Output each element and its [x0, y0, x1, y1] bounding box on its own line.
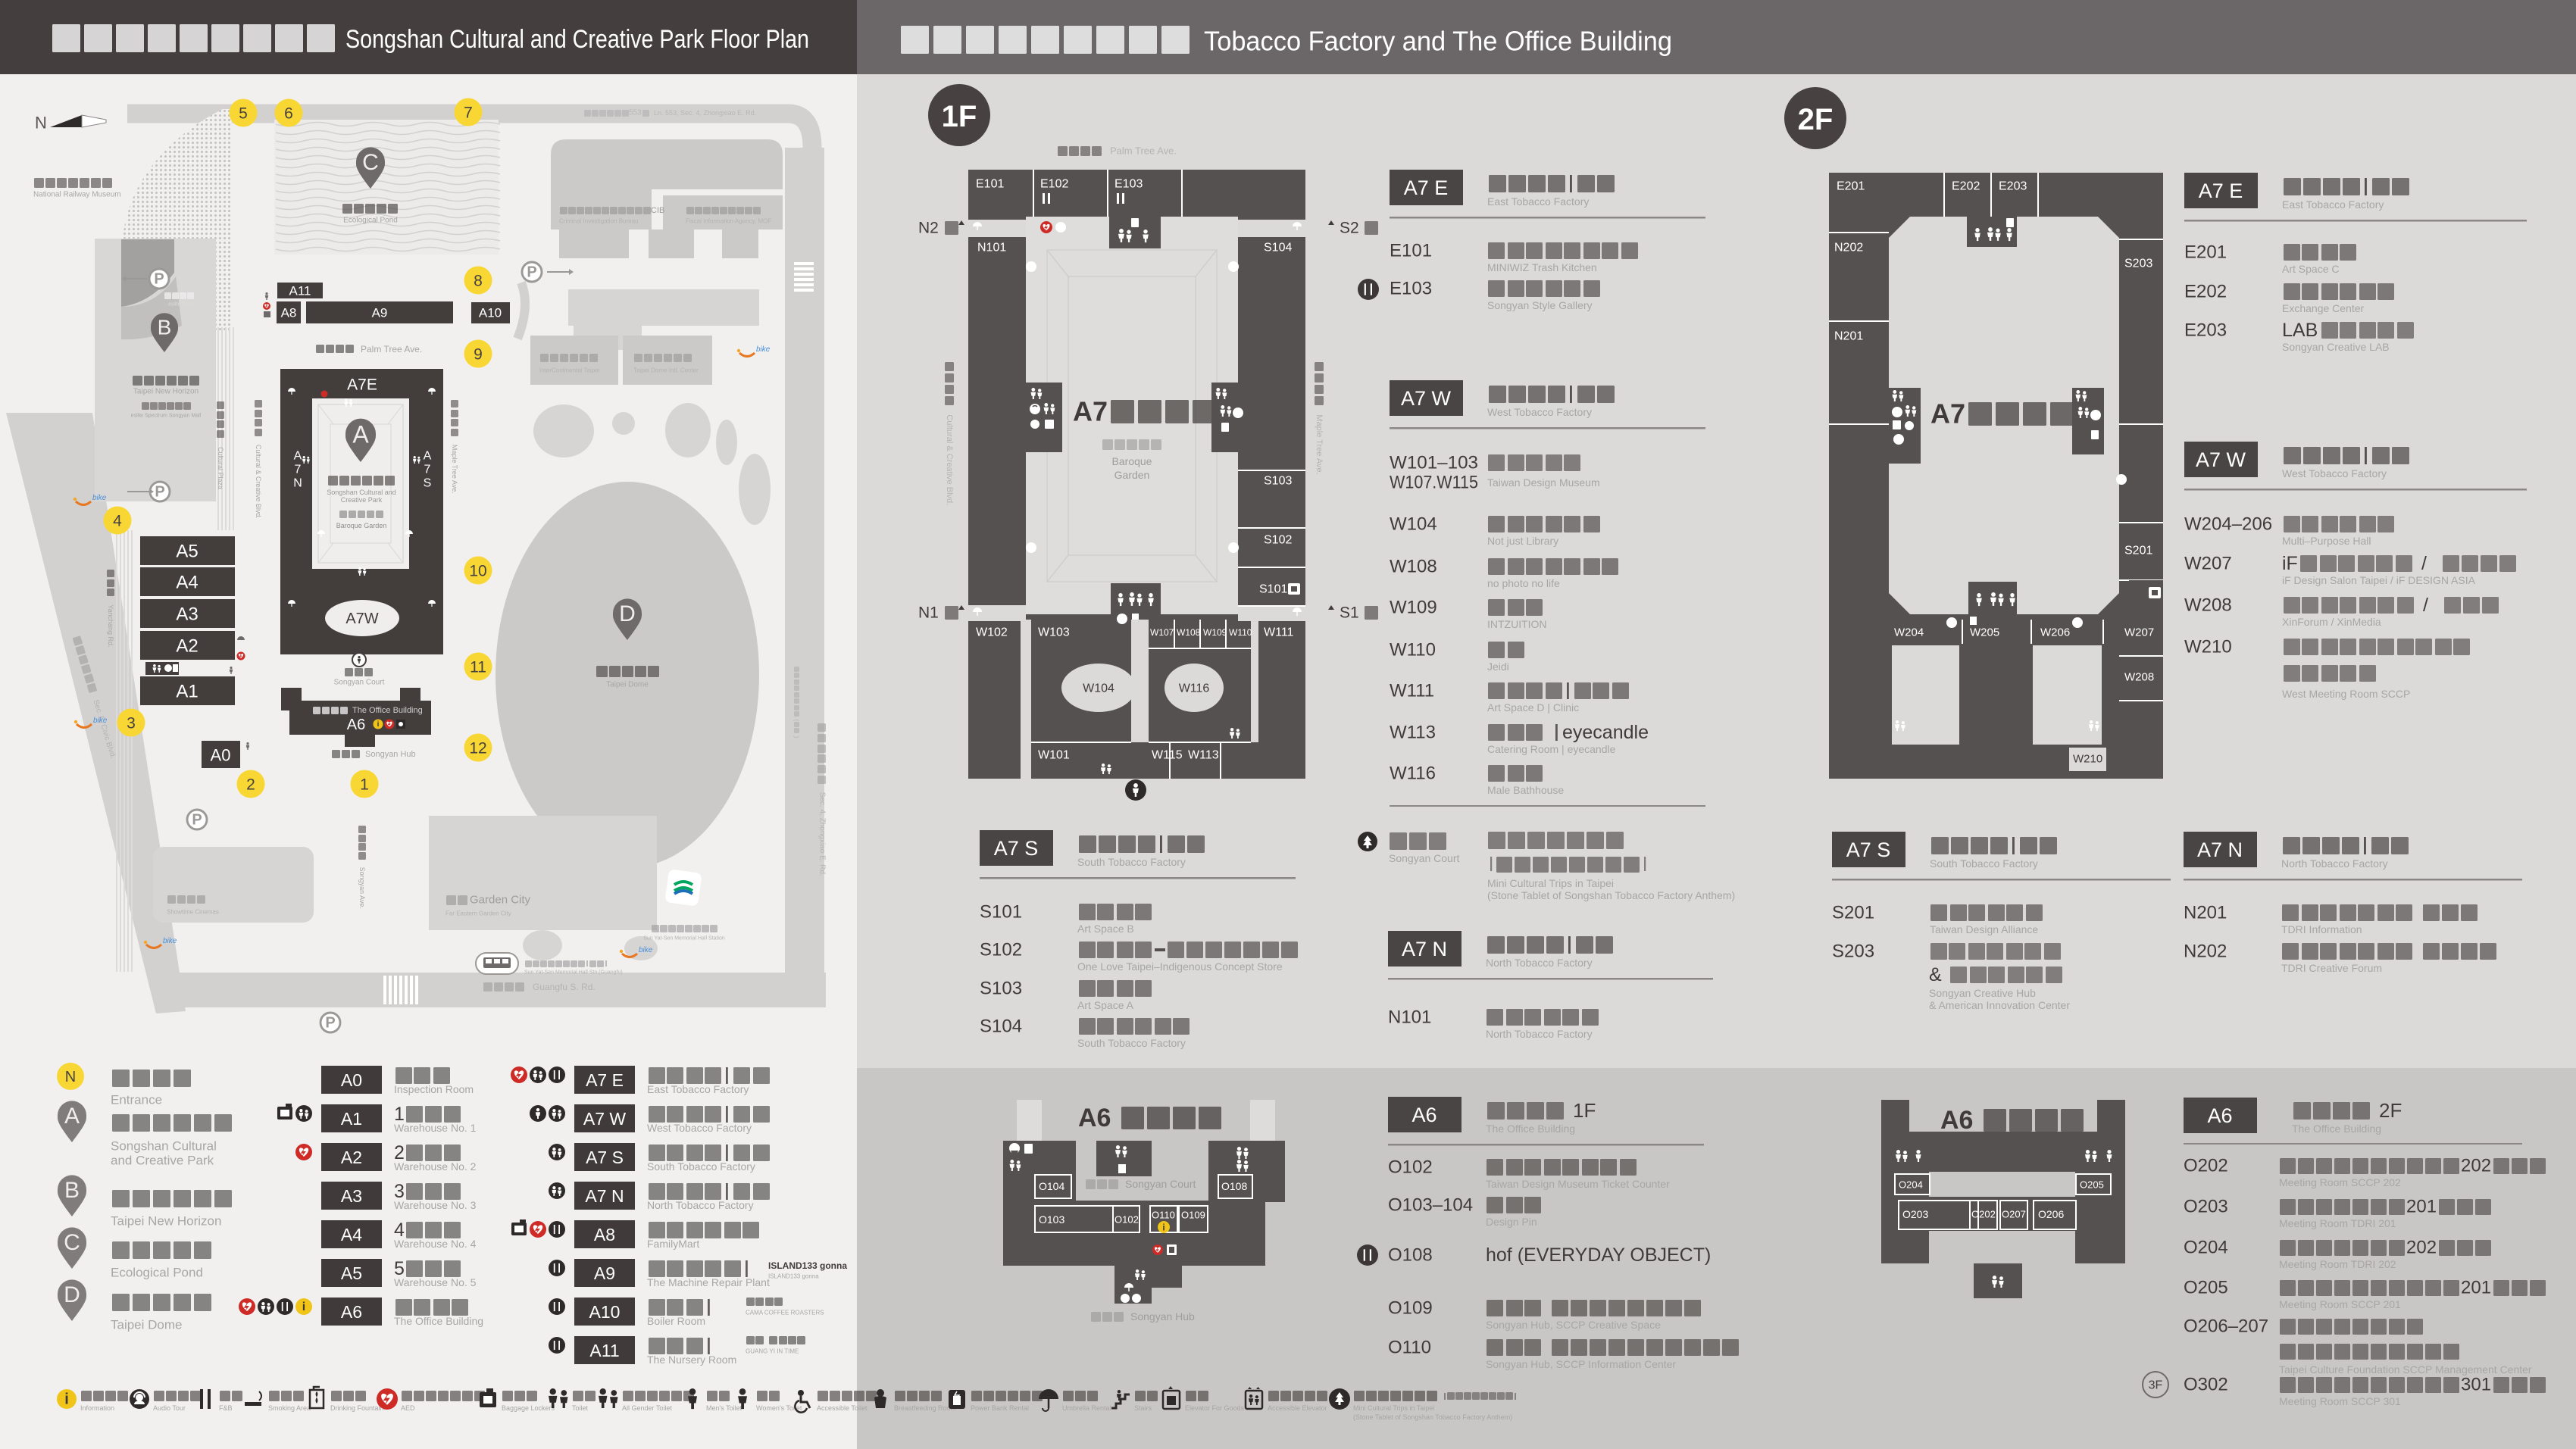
svg-text:10: 10 [469, 563, 486, 580]
svg-text:Meeting Room TDRI 201: Meeting Room TDRI 201 [2279, 1217, 2396, 1229]
svg-text:A0: A0 [341, 1070, 362, 1090]
svg-text:Exchange Center: Exchange Center [2282, 302, 2365, 314]
svg-text:W207: W207 [2184, 554, 2232, 574]
svg-text:O205: O205 [2080, 1179, 2104, 1191]
svg-text:C: C [362, 150, 379, 175]
svg-text:The Machine Repair Plant: The Machine Repair Plant [647, 1276, 770, 1288]
svg-text:W210: W210 [2073, 753, 2102, 766]
svg-text:Maple Tree Ave.: Maple Tree Ave. [451, 445, 458, 494]
svg-text:Catering Room | eyecandle: Catering Room | eyecandle [1487, 743, 1616, 755]
svg-text:O104: O104 [1039, 1180, 1064, 1192]
svg-text:Baroque Garden: Baroque Garden [336, 522, 387, 529]
svg-text:Art Space A: Art Space A [1077, 999, 1134, 1011]
svg-text:Elevator For Goods: Elevator For Goods [1185, 1404, 1245, 1412]
svg-text:i: i [1162, 1223, 1165, 1233]
svg-text:Multi–Purpose Hall: Multi–Purpose Hall [2282, 535, 2371, 547]
svg-text:XinForum / XinMedia: XinForum / XinMedia [2282, 616, 2381, 628]
svg-text:O109: O109 [1181, 1210, 1205, 1221]
svg-text:Sun Yat-Sen Memorial Hall Stn.: Sun Yat-Sen Memorial Hall Stn.(Guangfu) [524, 970, 623, 976]
svg-text:A7: A7 [1073, 396, 1108, 427]
svg-text:O202: O202 [1971, 1209, 1996, 1220]
svg-text:Cultural & Creative Blvd.: Cultural & Creative Blvd. [945, 414, 954, 505]
svg-text:Drinking Fountain: Drinking Fountain [330, 1404, 384, 1412]
svg-text:P: P [325, 1015, 335, 1032]
svg-text:N101: N101 [977, 242, 1006, 255]
svg-text:O205: O205 [2184, 1278, 2228, 1298]
svg-text:Art Space D | Clinic: Art Space D | Clinic [1487, 701, 1579, 714]
svg-text:MINIWIZ Trash Kitchen: MINIWIZ Trash Kitchen [1487, 261, 1597, 273]
svg-text:E203: E203 [2184, 320, 2227, 341]
svg-text:201: 201 [2406, 1197, 2437, 1217]
svg-text:S103: S103 [1264, 475, 1292, 488]
svg-text:S101: S101 [1259, 583, 1287, 596]
svg-text:O102: O102 [1388, 1157, 1433, 1178]
svg-text:B: B [64, 1178, 80, 1203]
svg-text:W207: W207 [2124, 626, 2154, 639]
svg-text:S203: S203 [1832, 942, 1874, 962]
svg-text:A7 S: A7 S [994, 837, 1039, 860]
svg-text:W110: W110 [1229, 627, 1252, 638]
svg-text:Warehouse No. 5: Warehouse No. 5 [394, 1276, 477, 1288]
svg-text:S201: S201 [1832, 903, 1874, 923]
svg-text:E201: E201 [1837, 180, 1865, 193]
svg-text:Entrance: Entrance [111, 1093, 162, 1107]
svg-text:W108: W108 [1390, 557, 1437, 577]
svg-text:O206–207: O206–207 [2184, 1316, 2268, 1337]
svg-text:Songyan Creative LAB: Songyan Creative LAB [2282, 341, 2390, 353]
svg-text:Palm Tree Ave.: Palm Tree Ave. [361, 344, 422, 354]
svg-text:FamilyMart: FamilyMart [647, 1238, 699, 1250]
svg-text:O204: O204 [2184, 1238, 2228, 1258]
svg-text:2: 2 [246, 776, 255, 794]
svg-text:Taiwan Design Alliance: Taiwan Design Alliance [1930, 923, 2038, 935]
svg-text:i: i [64, 1391, 69, 1408]
svg-text:O206: O206 [2038, 1208, 2064, 1220]
svg-text:O102: O102 [1114, 1214, 1139, 1226]
svg-text:W101–103: W101–103 [1390, 453, 1478, 473]
svg-text:A7W: A7W [345, 611, 378, 627]
svg-text:N202: N202 [2184, 942, 2227, 962]
svg-text:8: 8 [474, 273, 483, 290]
svg-text:N2: N2 [918, 220, 939, 237]
svg-text:(Stone Tablet of Songshan Toba: (Stone Tablet of Songshan Tobacco Factor… [1353, 1413, 1512, 1421]
svg-text:Smoking Area: Smoking Area [268, 1404, 311, 1412]
svg-text:CIB: CIB [651, 206, 664, 215]
svg-text:P: P [155, 484, 164, 501]
svg-text:W115: W115 [1152, 749, 1183, 762]
svg-text:Taiwan Design Museum: Taiwan Design Museum [1487, 476, 1600, 489]
svg-text:Art Space B: Art Space B [1077, 923, 1134, 935]
svg-text:Meeting Room SCCP 201: Meeting Room SCCP 201 [2279, 1298, 2401, 1310]
svg-text:Male Bathhouse: Male Bathhouse [1487, 784, 1564, 796]
svg-text:N: N [35, 114, 47, 133]
svg-text:S104: S104 [980, 1016, 1022, 1037]
svg-text:bike: bike [163, 937, 177, 945]
svg-text:A8: A8 [281, 306, 297, 320]
svg-text:Boiler Room: Boiler Room [647, 1315, 705, 1327]
svg-text:A8: A8 [594, 1225, 615, 1244]
svg-text:A4: A4 [176, 573, 198, 593]
svg-text:TDRI Creative Forum: TDRI Creative Forum [2281, 962, 2382, 974]
svg-text:S102: S102 [1264, 534, 1292, 547]
svg-text:i: i [302, 1301, 305, 1313]
svg-text:A: A [352, 421, 369, 448]
svg-text:A4: A4 [341, 1225, 362, 1244]
svg-text:Taipei New Horizon: Taipei New Horizon [133, 388, 199, 396]
svg-text:O103–104: O103–104 [1388, 1195, 1473, 1216]
svg-text:bike: bike [639, 946, 653, 954]
svg-text:F&B: F&B [219, 1404, 233, 1412]
svg-text:A5: A5 [341, 1263, 362, 1283]
svg-text:3F: 3F [2149, 1379, 2163, 1392]
svg-text:O110: O110 [1388, 1338, 1431, 1358]
svg-text:A7 N: A7 N [2197, 838, 2243, 861]
svg-text:All Gender Toilet: All Gender Toilet [622, 1404, 672, 1412]
svg-text:A3: A3 [176, 604, 198, 625]
svg-text:The Office Building: The Office Building [352, 706, 423, 715]
svg-text:W108: W108 [1177, 627, 1201, 638]
svg-text:A1: A1 [341, 1109, 362, 1129]
svg-text:North Tobacco Factory: North Tobacco Factory [1486, 957, 1593, 969]
svg-text:Information: Information [80, 1404, 114, 1412]
svg-text:W103: W103 [1038, 626, 1070, 639]
svg-text:O108: O108 [1221, 1180, 1247, 1192]
svg-text:O203: O203 [2184, 1197, 2228, 1217]
svg-text:North Tobacco Factory: North Tobacco Factory [1486, 1028, 1593, 1040]
svg-text:S103: S103 [980, 979, 1022, 999]
svg-text:201: 201 [2461, 1278, 2491, 1298]
svg-text:12: 12 [469, 740, 486, 757]
svg-text:i: i [377, 720, 380, 729]
svg-text:Fiscal Information Agency, MOF: Fiscal Information Agency, MOF [686, 218, 771, 225]
svg-text:202: 202 [2406, 1238, 2437, 1258]
svg-text:Taipei Dome Intl. Center: Taipei Dome Intl. Center [633, 367, 699, 374]
svg-text:Men's Toilet: Men's Toilet [706, 1404, 742, 1412]
svg-text:W107: W107 [1150, 627, 1174, 638]
svg-text:(Stone Tablet of Songshan Toba: (Stone Tablet of Songshan Tobacco Factor… [1487, 889, 1735, 901]
svg-text:P: P [527, 264, 536, 281]
svg-text:W101: W101 [1038, 749, 1070, 762]
svg-text:O110: O110 [1152, 1210, 1175, 1221]
svg-text:7: 7 [295, 464, 302, 476]
svg-text:West Tobacco Factory: West Tobacco Factory [647, 1122, 752, 1134]
svg-text:Songyan Hub: Songyan Hub [1130, 1310, 1195, 1323]
svg-text:Cultural Plaza: Cultural Plaza [217, 447, 224, 489]
svg-text:W204: W204 [1894, 626, 1924, 639]
svg-text:A9: A9 [372, 306, 388, 320]
svg-text:Songyan Court: Songyan Court [334, 679, 385, 687]
svg-text:E102: E102 [1040, 178, 1068, 191]
svg-text:O204: O204 [1899, 1179, 1923, 1191]
svg-text:O109: O109 [1388, 1298, 1433, 1319]
svg-text:ISLAND133 gonna: ISLAND133 gonna [768, 1260, 847, 1271]
svg-text:Songyan Court: Songyan Court [1125, 1178, 1196, 1190]
svg-text:Warehouse No. 4: Warehouse No. 4 [394, 1238, 477, 1250]
svg-text:Songyan Court: Songyan Court [1389, 852, 1460, 864]
svg-text:hof (EVERYDAY OBJECT): hof (EVERYDAY OBJECT) [1486, 1244, 1711, 1266]
svg-text:iF: iF [2282, 553, 2298, 574]
svg-text:O207: O207 [2002, 1209, 2026, 1220]
svg-text:N201: N201 [2184, 903, 2227, 923]
svg-text:Umbrella Rental: Umbrella Rental [1062, 1404, 1111, 1412]
svg-text:A10: A10 [589, 1302, 621, 1322]
svg-text:S: S [424, 477, 432, 490]
svg-text:Taipei Culture Foundation SCCP: Taipei Culture Foundation SCCP Managemen… [2279, 1363, 2532, 1376]
svg-text:The Office Building: The Office Building [394, 1315, 483, 1327]
svg-text:no photo no life: no photo no life [1487, 577, 1560, 589]
svg-text:Baggage Lockers: Baggage Lockers [502, 1404, 555, 1412]
svg-text:1: 1 [360, 776, 369, 794]
svg-text:A6: A6 [1078, 1104, 1111, 1132]
svg-text:B: B [158, 316, 172, 339]
svg-text:A7 W: A7 W [1401, 387, 1452, 410]
svg-text:Warehouse No. 3: Warehouse No. 3 [394, 1199, 477, 1211]
svg-text:(: ( [793, 720, 800, 722]
svg-text:Design Pin: Design Pin [1486, 1216, 1537, 1228]
svg-text:AED: AED [401, 1404, 415, 1412]
svg-text:Yanchang Rd.: Yanchang Rd. [107, 604, 114, 647]
svg-text:A6: A6 [347, 717, 365, 733]
svg-text:1F: 1F [1573, 1099, 1596, 1122]
svg-text:Stairs: Stairs [1134, 1404, 1152, 1412]
svg-text:A9: A9 [594, 1263, 615, 1283]
svg-text:Sun Yat-Sen Memorial Hall Stat: Sun Yat-Sen Memorial Hall Station [643, 936, 725, 942]
svg-text:The Nursery Room: The Nursery Room [647, 1354, 736, 1366]
svg-text:CAMA COFFEE ROASTERS: CAMA COFFEE ROASTERS [746, 1310, 824, 1316]
svg-text:eslite hotel: eslite hotel [168, 302, 194, 308]
svg-text:Warehouse No. 2: Warehouse No. 2 [394, 1160, 477, 1173]
svg-text:One Love Taipei–Indigenous Con: One Love Taipei–Indigenous Concept Store [1077, 960, 1283, 973]
svg-text:bike: bike [92, 494, 107, 502]
svg-text:and Creative Park: and Creative Park [111, 1154, 214, 1168]
svg-text:Accessible Toilet: Accessible Toilet [817, 1404, 868, 1412]
svg-text:Ln. 553, Sec. 4, Zhongxiao E.: Ln. 553, Sec. 4, Zhongxiao E. Rd. [654, 109, 756, 117]
svg-text:S102: S102 [980, 940, 1022, 960]
svg-text:LAB: LAB [2282, 320, 2318, 341]
svg-text:ISLAND133 gonna: ISLAND133 gonna [768, 1273, 819, 1280]
svg-text:E202: E202 [2184, 282, 2227, 302]
svg-text:1F: 1F [942, 100, 977, 133]
svg-text:A7E: A7E [347, 376, 377, 394]
svg-text:Criminal Investigation Bureau: Criminal Investigation Bureau [559, 218, 639, 225]
svg-text:South Tobacco Factory: South Tobacco Factory [647, 1160, 755, 1173]
svg-text:W111: W111 [1390, 681, 1434, 701]
svg-text:Guangfu S. Rd.: Guangfu S. Rd. [533, 982, 596, 992]
svg-text:National Railway Museum: National Railway Museum [33, 191, 121, 199]
svg-text:Baroque: Baroque [1112, 455, 1152, 467]
svg-text:A: A [294, 450, 302, 463]
svg-text:N: N [293, 477, 302, 490]
svg-text:West Tobacco Factory: West Tobacco Factory [1487, 406, 1592, 418]
svg-text:/: / [2423, 595, 2428, 616]
svg-text:West Tobacco Factory: West Tobacco Factory [2282, 467, 2387, 479]
svg-text:D: D [619, 601, 636, 626]
svg-text:7: 7 [464, 105, 473, 122]
svg-text:4: 4 [113, 513, 122, 530]
svg-text:Songyan Ave.: Songyan Ave. [358, 867, 366, 909]
svg-text:bike: bike [756, 345, 771, 354]
svg-text:A7 E: A7 E [586, 1070, 624, 1090]
svg-text:6: 6 [284, 105, 293, 123]
svg-text:S201: S201 [2124, 545, 2152, 557]
svg-text:A7 N: A7 N [585, 1186, 624, 1206]
svg-text:E103: E103 [1390, 279, 1432, 299]
svg-text:Ecological Pond: Ecological Pond [111, 1266, 203, 1280]
svg-text:Songyan Style Gallery: Songyan Style Gallery [1487, 299, 1593, 311]
svg-text:W208: W208 [2124, 671, 2154, 684]
svg-text:E103: E103 [1114, 178, 1143, 191]
svg-text:Taiwan Design Museum Ticket Co: Taiwan Design Museum Ticket Counter [1486, 1178, 1670, 1190]
svg-text:W109: W109 [1390, 598, 1437, 618]
svg-text:O108: O108 [1388, 1245, 1433, 1266]
svg-text:Tobacco Factory and The Office: Tobacco Factory and The Office Building [1204, 26, 1672, 57]
svg-text:A7 N: A7 N [1402, 938, 1447, 960]
svg-text:5: 5 [239, 105, 248, 123]
svg-text:A2: A2 [341, 1148, 362, 1167]
svg-text:Songyan Creative Hub: Songyan Creative Hub [1929, 987, 2036, 999]
svg-text:eyecandle: eyecandle [1562, 722, 1649, 743]
svg-text:W104: W104 [1083, 682, 1114, 695]
svg-text:S104: S104 [1264, 242, 1292, 255]
svg-text:Warehouse No. 1: Warehouse No. 1 [394, 1122, 477, 1134]
svg-text:O103: O103 [1039, 1213, 1064, 1226]
svg-text:South Tobacco Factory: South Tobacco Factory [1077, 856, 1186, 868]
svg-text:A: A [64, 1104, 80, 1129]
svg-text:South Tobacco Factory: South Tobacco Factory [1930, 857, 2038, 870]
svg-text:Songyan Hub: Songyan Hub [365, 750, 416, 759]
svg-text:A7 S: A7 S [1846, 838, 1891, 861]
svg-text:D: D [64, 1282, 80, 1307]
svg-text:Maple Tree Ave.: Maple Tree Ave. [1315, 414, 1324, 474]
svg-text:East Tobacco Factory: East Tobacco Factory [1487, 195, 1589, 208]
svg-text:North Tobacco Factory: North Tobacco Factory [2281, 857, 2388, 870]
svg-text:A2: A2 [176, 636, 198, 657]
svg-text:A3: A3 [341, 1186, 362, 1206]
svg-text:Ecological Pond: Ecological Pond [343, 217, 398, 225]
svg-text:InterContinental Taipei: InterContinental Taipei [539, 367, 600, 374]
svg-text:P: P [192, 812, 202, 829]
svg-text:W208: W208 [2184, 595, 2232, 616]
svg-text:A6: A6 [1940, 1106, 1973, 1135]
svg-text:E203: E203 [1999, 180, 2027, 193]
svg-text:W107.W115: W107.W115 [1390, 473, 1478, 493]
svg-text:Jeidi: Jeidi [1487, 660, 1509, 673]
svg-text:Songshan Cultural: Songshan Cultural [111, 1139, 217, 1154]
svg-text:S203: S203 [2124, 258, 2152, 270]
svg-text:&: & [1929, 964, 1942, 985]
svg-text:Songyan Hub, SCCP Creative Spa: Songyan Hub, SCCP Creative Space [1486, 1319, 1661, 1331]
svg-text:W206: W206 [2040, 626, 2070, 639]
svg-text:3: 3 [127, 715, 136, 732]
svg-text:Creative Park: Creative Park [341, 496, 383, 504]
svg-text:Meeting Room SCCP 202: Meeting Room SCCP 202 [2279, 1176, 2401, 1188]
svg-text:W210: W210 [2184, 637, 2232, 657]
svg-text:Meeting Room TDRI 202: Meeting Room TDRI 202 [2279, 1258, 2396, 1270]
svg-text:A5: A5 [176, 542, 198, 562]
svg-text:E202: E202 [1952, 180, 1980, 193]
svg-text:W110: W110 [1390, 640, 1436, 660]
svg-text:A7 W: A7 W [583, 1109, 627, 1129]
svg-text:Palm Tree Ave.: Palm Tree Ave. [1110, 145, 1177, 157]
svg-text:S101: S101 [980, 902, 1022, 923]
svg-text:iF Design Salon Taipei / iF DE: iF Design Salon Taipei / iF DESIGN ASIA [2282, 574, 2476, 586]
svg-text:Accessible Elevator: Accessible Elevator [1268, 1404, 1327, 1412]
svg-text:Inspection Room: Inspection Room [394, 1083, 474, 1095]
svg-text:7: 7 [424, 464, 431, 476]
svg-text:N202: N202 [1834, 242, 1863, 255]
svg-text:301: 301 [2461, 1375, 2491, 1395]
svg-text:East Tobacco Factory: East Tobacco Factory [2282, 198, 2384, 211]
svg-text:eslite Spectrum Songyan Mall: eslite Spectrum Songyan Mall [131, 414, 202, 419]
svg-text:/: / [2421, 553, 2427, 574]
svg-text:Breastfeeding Room: Breastfeeding Room [894, 1404, 956, 1412]
svg-text:A: A [424, 450, 432, 463]
svg-text:A11: A11 [289, 284, 311, 298]
svg-text:The Office Building: The Office Building [1486, 1123, 1575, 1135]
svg-text:W104: W104 [1390, 514, 1437, 535]
svg-text:Garden City: Garden City [470, 894, 531, 907]
svg-text:West Meeting Room SCCP: West Meeting Room SCCP [2282, 688, 2410, 700]
svg-text:East Tobacco Factory: East Tobacco Factory [647, 1083, 749, 1095]
svg-text:Toilet: Toilet [572, 1404, 589, 1412]
svg-text:A7 S: A7 S [586, 1148, 624, 1167]
svg-text:Taipei New Horizon: Taipei New Horizon [111, 1214, 221, 1229]
svg-text:A6: A6 [2207, 1104, 2232, 1127]
svg-text:Far Eastern Garden City: Far Eastern Garden City [445, 910, 511, 917]
svg-text:2F: 2F [1798, 103, 1834, 136]
svg-text:N101: N101 [1388, 1007, 1431, 1028]
svg-text:W109: W109 [1203, 627, 1227, 638]
svg-text:Showtime Cinemas: Showtime Cinemas [167, 909, 219, 916]
svg-text:Not just Library: Not just Library [1487, 535, 1558, 547]
svg-text:9: 9 [474, 346, 483, 364]
svg-text:N1: N1 [918, 604, 939, 622]
svg-text:O202: O202 [2184, 1156, 2228, 1176]
svg-text:W116: W116 [1390, 764, 1436, 784]
svg-text:Audio Tour: Audio Tour [153, 1404, 186, 1412]
svg-text:Mini Cultural Trips in Taipei: Mini Cultural Trips in Taipei [1353, 1404, 1434, 1412]
svg-text:bike: bike [93, 717, 108, 725]
svg-text:E101: E101 [1390, 241, 1432, 261]
svg-text:W204–206: W204–206 [2184, 514, 2272, 535]
svg-text:S1: S1 [1340, 604, 1359, 622]
svg-text:A10: A10 [479, 306, 502, 320]
svg-text:11: 11 [470, 659, 486, 676]
svg-text:W113: W113 [1188, 749, 1219, 762]
svg-text:Sec. 4, Zhongxiao E. Rd.: Sec. 4, Zhongxiao E. Rd. [818, 792, 827, 876]
svg-text:A6: A6 [341, 1302, 362, 1322]
svg-text:A7: A7 [1930, 398, 1965, 429]
svg-text:Power Bank Rental: Power Bank Rental [971, 1404, 1029, 1412]
svg-text:& American Innovation Center: & American Innovation Center [1929, 999, 2070, 1011]
svg-text:Songyan Hub, SCCP Information: Songyan Hub, SCCP Information Center [1486, 1358, 1676, 1370]
svg-text:TDRI Information: TDRI Information [2281, 923, 2362, 935]
svg-text:Songshan Cultural and: Songshan Cultural and [327, 489, 396, 496]
svg-text:Cultural & Creative Blvd.: Cultural & Creative Blvd. [255, 445, 262, 519]
svg-text:Songshan Cultural and Creative: Songshan Cultural and Creative Park Floo… [345, 25, 809, 54]
svg-text:A7 E: A7 E [2199, 180, 2243, 202]
svg-text:W111: W111 [1264, 626, 1294, 639]
svg-text:Taipei Dome: Taipei Dome [606, 681, 649, 689]
svg-text:Garden: Garden [1114, 469, 1150, 481]
svg-text:553: 553 [629, 109, 642, 117]
svg-text:S2: S2 [1340, 220, 1359, 237]
svg-text:N201: N201 [1834, 330, 1863, 343]
svg-text:The Office Building: The Office Building [2292, 1123, 2381, 1135]
svg-text:A11: A11 [589, 1341, 619, 1360]
svg-text:E101: E101 [976, 178, 1004, 191]
svg-text:): ) [793, 736, 800, 739]
